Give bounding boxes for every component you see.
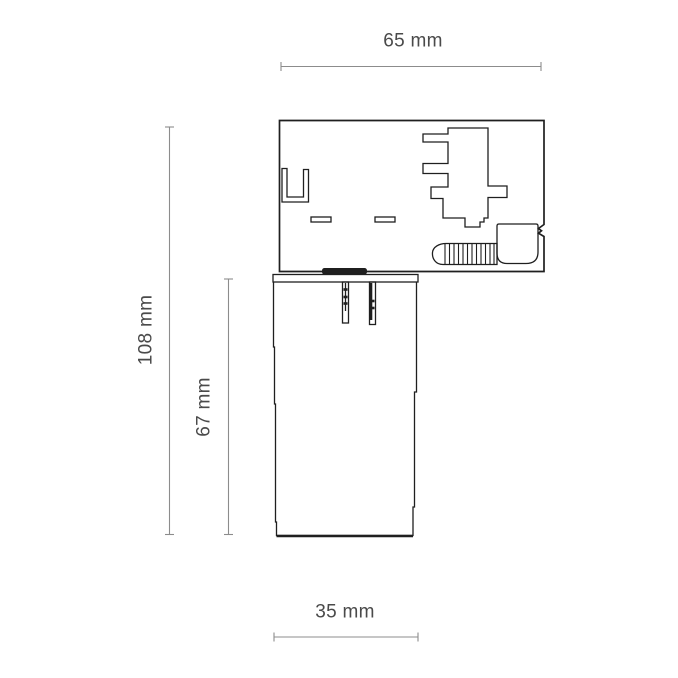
dimension-line-height-body	[224, 279, 233, 535]
knurled-roller	[432, 244, 497, 265]
dimension-line-height-total	[165, 127, 174, 535]
dimension-label-width-top: 65 mm	[383, 32, 443, 51]
junction-strip	[322, 268, 367, 275]
lamp-body-outline	[274, 283, 417, 537]
body-top-plate	[273, 275, 418, 283]
adapter-head-outline	[280, 121, 545, 272]
dimension-label-width-bottom: 35 mm	[315, 603, 375, 622]
connector-block	[423, 128, 507, 227]
lock-knob	[497, 224, 538, 264]
dimension-line-width-top	[281, 62, 541, 71]
dimension-label-height-body: 67 mm	[195, 377, 214, 437]
mounting-clip-u-shape	[282, 169, 309, 203]
dimension-line-width-bottom	[274, 633, 418, 642]
contact-prongs	[343, 282, 376, 325]
product-outline-drawing	[0, 0, 678, 678]
contact-slots	[311, 217, 395, 222]
dimension-drawing-canvas: 65 mm 108 mm 67 mm 35 mm	[0, 0, 678, 678]
dimension-label-height-total: 108 mm	[137, 295, 156, 365]
